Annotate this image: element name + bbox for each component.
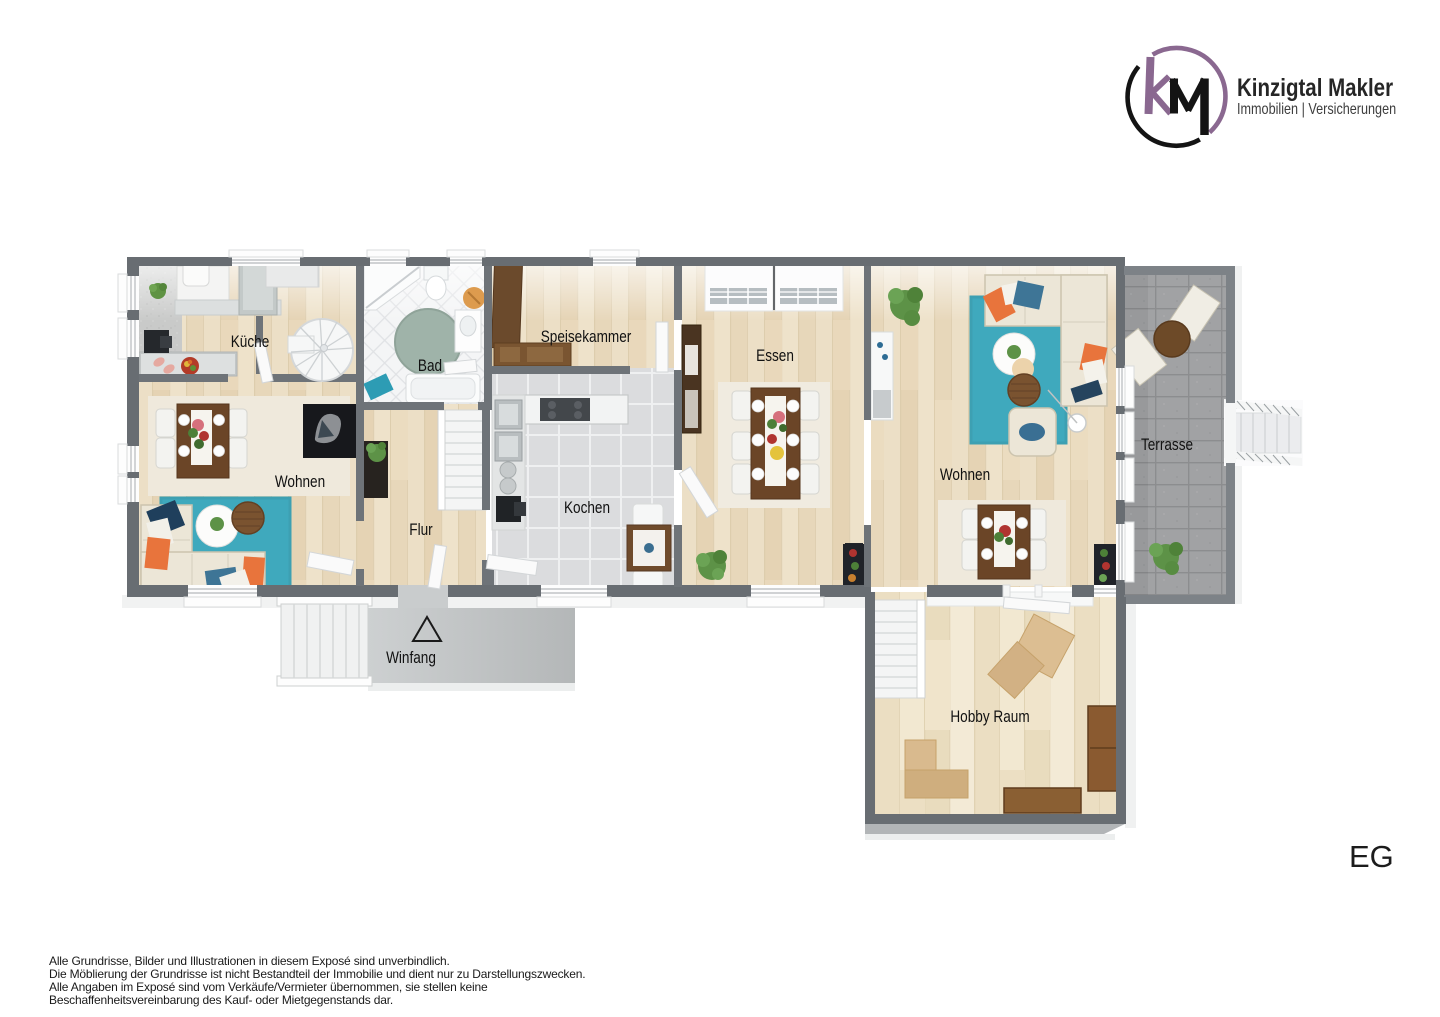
svg-text:Flur: Flur (409, 521, 432, 540)
svg-text:Speisekammer: Speisekammer (541, 328, 632, 347)
svg-text:Kochen: Kochen (564, 499, 610, 518)
svg-text:Winfang: Winfang (386, 649, 436, 668)
svg-text:Wohnen: Wohnen (940, 466, 990, 485)
svg-text:Bad: Bad (418, 357, 442, 376)
svg-text:Essen: Essen (756, 347, 794, 366)
svg-text:Kinzigtal Makler: Kinzigtal Makler (1237, 73, 1393, 101)
svg-text:Die Möblierung der Grundrisse: Die Möblierung der Grundrisse ist nicht … (49, 967, 585, 981)
svg-text:Terrasse: Terrasse (1141, 436, 1193, 455)
svg-text:Wohnen: Wohnen (275, 473, 325, 492)
svg-text:Beschaffenheitsvereinbarung de: Beschaffenheitsvereinbarung des Kauf- od… (49, 993, 393, 1007)
svg-text:Hobby Raum: Hobby Raum (950, 708, 1029, 727)
svg-text:Immobilien | Versicherungen: Immobilien | Versicherungen (1237, 101, 1396, 119)
svg-text:Alle Angaben im Exposé sind vo: Alle Angaben im Exposé sind vom Verkäufe… (49, 980, 488, 994)
svg-text:Küche: Küche (231, 333, 270, 352)
svg-text:Alle Grundrisse, Bilder und Il: Alle Grundrisse, Bilder und Illustration… (49, 954, 450, 968)
svg-text:EG: EG (1349, 839, 1394, 874)
